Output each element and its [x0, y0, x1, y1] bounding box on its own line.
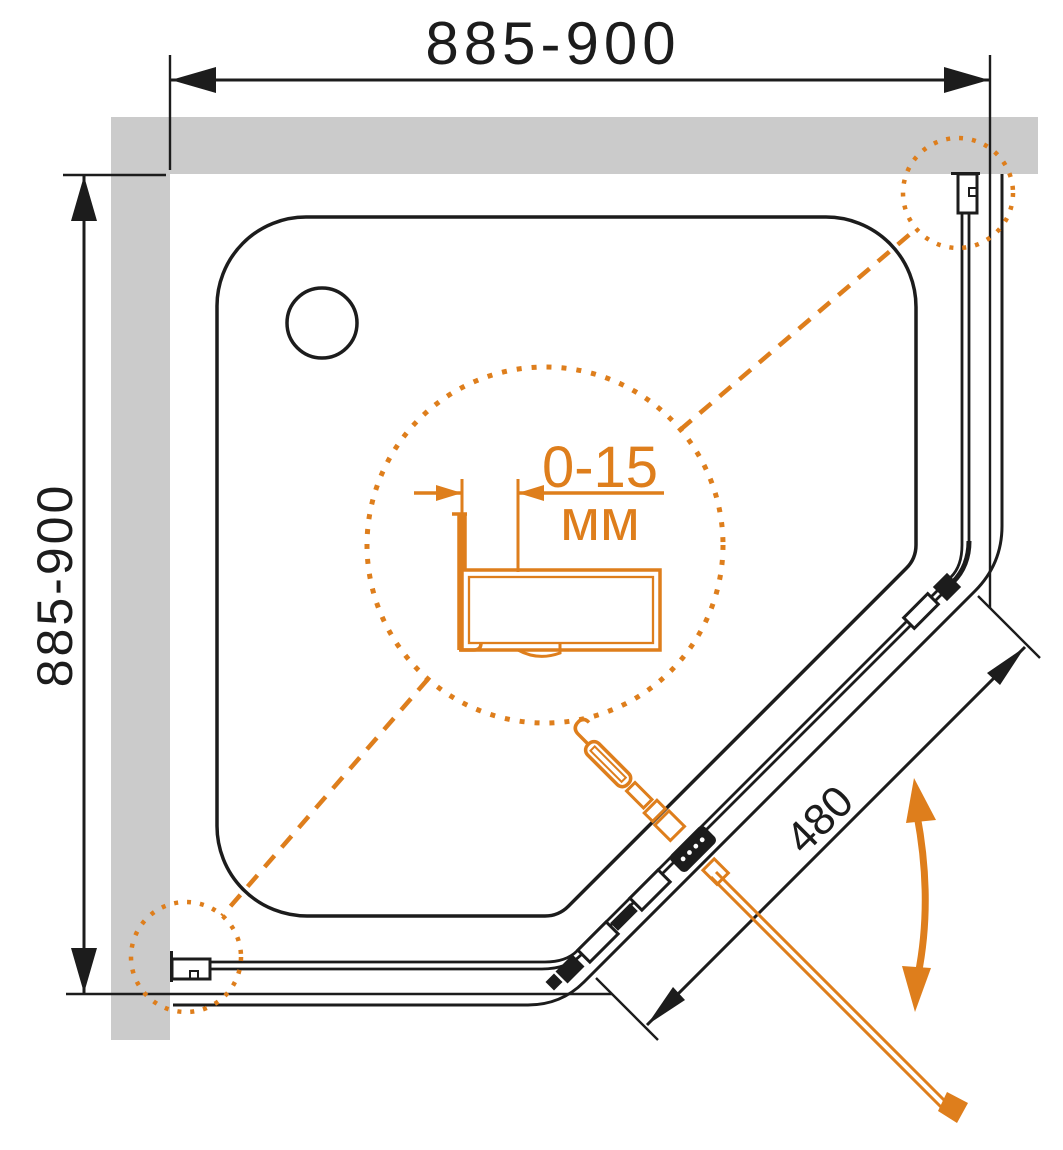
dim-top-label: 885-900: [425, 10, 680, 77]
callout-connector-bottom-left: [222, 679, 428, 916]
arrowhead-right: [944, 67, 989, 93]
wall-profile-bottom-left: [172, 951, 211, 982]
wall-left: [111, 117, 170, 1040]
door-center-clamp: [668, 824, 718, 874]
detail-view-profile-adjustment: 0-15 мм: [414, 435, 664, 656]
glass-line-outer: [209, 213, 962, 962]
technical-drawing-shower-enclosure: 885-900 885-900 480: [0, 0, 1063, 1150]
frame-profile-outer: [462, 570, 660, 650]
wall-top: [111, 117, 1038, 174]
detail-unit-label: мм: [560, 488, 640, 553]
door-open-position: [711, 872, 968, 1123]
detail-callouts: [131, 138, 1013, 1012]
detail-circle-large: [367, 367, 723, 723]
callout-connector-top-right: [680, 229, 916, 430]
frame-profile-inner: [469, 577, 653, 643]
arrowhead-left: [171, 67, 216, 93]
arrowhead-down: [71, 948, 97, 993]
swing-arrowhead-up: [906, 778, 936, 823]
arrowhead-up: [71, 176, 97, 221]
dim-door-label: 480: [776, 776, 863, 863]
drain-circle: [287, 288, 357, 358]
glass-line-inner: [209, 213, 969, 969]
dim-left-label: 885-900: [27, 483, 83, 688]
detail-arrow-left: [518, 485, 544, 501]
detail-arrow-right: [436, 485, 462, 501]
door-swing-arrow: [902, 778, 936, 1012]
drawing-canvas: 885-900 885-900 480: [0, 0, 1063, 1150]
wall-profile-top-right: [951, 174, 980, 214]
door-handle-assembly: [565, 717, 734, 886]
swing-arrowhead-down: [902, 966, 931, 1012]
